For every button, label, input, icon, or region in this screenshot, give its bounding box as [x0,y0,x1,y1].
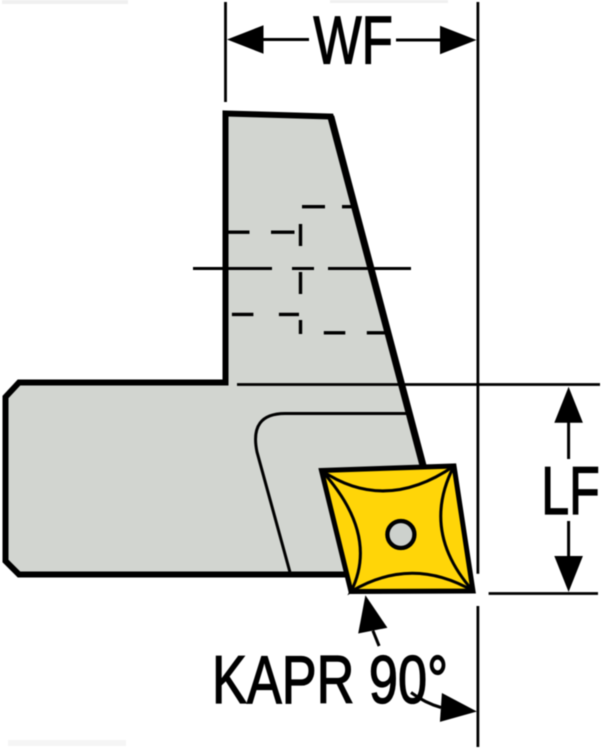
svg-text:LF: LF [541,454,600,529]
svg-text:KAPR 90°: KAPR 90° [212,643,448,718]
svg-text:WF: WF [313,3,393,78]
